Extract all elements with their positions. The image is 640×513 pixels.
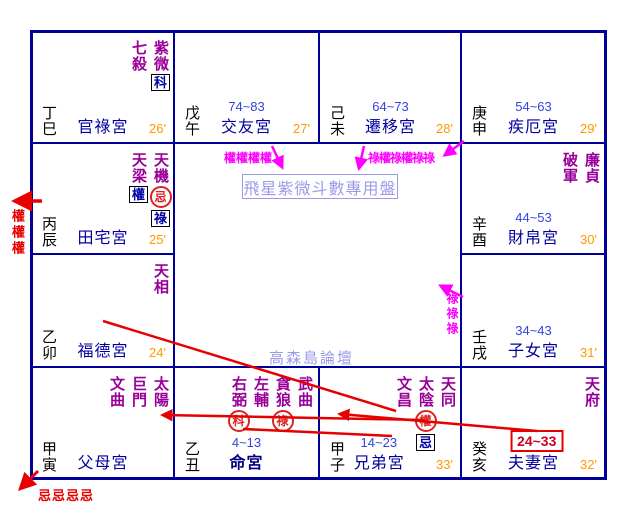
minute-mark: 30' xyxy=(580,232,597,247)
grid-line-v1 xyxy=(173,33,175,477)
star-pojun: 破軍 xyxy=(560,152,579,184)
grid-line-v3 xyxy=(460,33,462,477)
minute-mark: 29' xyxy=(580,121,597,136)
palace-name: 遷移宮 xyxy=(365,113,416,137)
grid-line-h2-right xyxy=(460,253,607,255)
palace-cell-fude: 天相 乙卯 福德宮 24' xyxy=(33,256,173,366)
star-column: 左輔 xyxy=(251,376,270,432)
branch-label: 壬戌 xyxy=(470,329,487,361)
star-group: 天相 xyxy=(151,263,170,295)
palace-name: 疾厄宮 xyxy=(508,113,559,137)
branch-label: 癸亥 xyxy=(470,441,487,473)
star-group: 廉貞 破軍 xyxy=(560,152,601,184)
palace-cell-ming: 武曲 貪狼 祿 左輔 右弼 科 乙丑 4~13 命宮 xyxy=(176,369,317,478)
palace-cell-zinv: 壬戌 34~43 子女宮 31' xyxy=(463,256,604,366)
marker-circle-ji: 忌 xyxy=(150,186,172,208)
star-group: 太陽 巨門 文曲 xyxy=(107,376,170,408)
star-column: 紫微 科 xyxy=(151,40,170,91)
star-ziwei: 紫微 xyxy=(151,40,170,72)
branch-label: 乙卯 xyxy=(40,329,57,361)
star-wuqu: 武曲 xyxy=(295,376,314,408)
palace-cell-jiaoyou: 戊午 74~83 交友宮 27' xyxy=(176,33,317,142)
palace-name: 夫妻宮 xyxy=(508,449,559,473)
star-column: 貪狼 祿 xyxy=(273,376,292,432)
star-wenqu: 文曲 xyxy=(107,376,126,408)
palace-cell-caibo: 廉貞 破軍 辛酉 44~53 財帛宮 30' xyxy=(463,145,604,253)
marker-circle-lu: 祿 xyxy=(272,410,294,432)
star-wenchang: 文昌 xyxy=(394,376,413,408)
age-range: 34~43 xyxy=(515,323,552,338)
palace-cell-tianzhai: 天機 忌 祿 天梁 權 丙辰 田宅宮 25' xyxy=(33,145,173,253)
star-tiantong: 天同 xyxy=(438,376,457,408)
age-range: 54~63 xyxy=(515,99,552,114)
minute-mark: 26' xyxy=(149,121,166,136)
label-quan-left: 權權權 xyxy=(11,209,24,257)
star-group: 天機 忌 祿 天梁 權 xyxy=(129,152,170,227)
star-jumen: 巨門 xyxy=(129,376,148,408)
watermark-text: 高森島論壇 xyxy=(269,347,354,368)
star-zuofu: 左輔 xyxy=(251,376,270,408)
palace-cell-fumu: 太陽 巨門 文曲 甲寅 父母宮 xyxy=(33,369,173,478)
star-column: 天同 xyxy=(438,376,457,451)
marker-circle-quan: 權 xyxy=(415,410,437,432)
star-column: 廉貞 xyxy=(582,152,601,184)
branch-label: 甲寅 xyxy=(40,441,57,473)
chart-title: 飛星紫微斗數專用盤 xyxy=(243,175,396,199)
star-group: 天府 xyxy=(582,376,601,408)
chart-title-box: 飛星紫微斗數專用盤 xyxy=(242,174,398,199)
star-column: 七殺 xyxy=(129,40,148,91)
palace-name: 官祿宮 xyxy=(77,113,128,137)
palace-name: 兄弟宮 xyxy=(354,449,405,473)
marker-box-ke: 科 xyxy=(151,74,170,91)
palace-cell-guanlu: 紫微 科 七殺 丁巳 官祿宮 26' xyxy=(33,33,173,142)
palace-cell-jie: 庚申 54~63 疾厄宮 29' xyxy=(463,33,604,142)
star-column: 太陽 xyxy=(151,376,170,408)
palace-name: 交友宮 xyxy=(221,113,272,137)
star-group: 天同 太陰 權 忌 文昌 xyxy=(394,376,457,451)
star-tianliang: 天梁 xyxy=(129,152,148,184)
grid-line-h2-left xyxy=(33,253,173,255)
age-range: 14~23 xyxy=(361,435,398,450)
minute-mark: 24' xyxy=(149,345,166,360)
star-tianxiang: 天相 xyxy=(151,263,170,295)
age-range: 74~83 xyxy=(228,99,265,114)
branch-label: 辛酉 xyxy=(470,216,487,248)
star-column: 天機 忌 祿 xyxy=(151,152,170,227)
star-column: 巨門 xyxy=(129,376,148,408)
star-lianzhen: 廉貞 xyxy=(582,152,601,184)
star-column: 武曲 xyxy=(295,376,314,432)
star-tanlang: 貪狼 xyxy=(273,376,292,408)
label-ji-bottom: 忌忌忌忌 xyxy=(38,485,94,504)
star-tianfu: 天府 xyxy=(582,376,601,408)
marker-box-ji: 忌 xyxy=(416,434,435,451)
palace-name: 福德宮 xyxy=(77,337,128,361)
palace-name: 父母宮 xyxy=(77,449,128,473)
star-column: 天相 xyxy=(151,263,170,295)
marker-circle-ke: 科 xyxy=(228,410,250,432)
palace-cell-fuqi: 天府 癸亥 24~33 夫妻宮 32' xyxy=(463,369,604,478)
star-column: 太陰 權 忌 xyxy=(416,376,435,451)
star-column: 右弼 科 xyxy=(229,376,248,432)
grid-line-h1 xyxy=(33,142,607,144)
marker-box-lu: 祿 xyxy=(151,210,170,227)
star-group: 武曲 貪狼 祿 左輔 右弼 科 xyxy=(229,376,314,432)
ziwei-chart: 飛星紫微斗數專用盤 高森島論壇 紫微 科 七殺 丁巳 官祿宮 26' 戊午 74… xyxy=(0,0,640,513)
star-column: 天梁 權 xyxy=(129,152,148,227)
palace-name-ming: 命宮 xyxy=(229,449,263,473)
star-youbi: 右弼 xyxy=(229,376,248,408)
star-column: 天府 xyxy=(582,376,601,408)
label-lu-quan-top: 祿權祿權祿祿 xyxy=(368,149,434,166)
branch-label: 戊午 xyxy=(183,105,200,137)
age-range: 44~53 xyxy=(515,210,552,225)
star-taiyin: 太陰 xyxy=(416,376,435,408)
age-range: 64~73 xyxy=(372,99,409,114)
branch-label: 己未 xyxy=(328,105,345,137)
branch-label: 庚申 xyxy=(470,105,487,137)
marker-box-quan: 權 xyxy=(129,186,148,203)
star-tianji: 天機 xyxy=(151,152,170,184)
branch-label: 甲子 xyxy=(328,441,345,473)
branch-label: 乙丑 xyxy=(183,441,200,473)
age-range: 4~13 xyxy=(232,435,261,450)
minute-mark: 33' xyxy=(436,457,453,472)
grid-line-v2-top xyxy=(318,33,320,142)
grid-line-v2-bottom xyxy=(318,368,320,477)
minute-mark: 32' xyxy=(580,457,597,472)
star-taiyang: 太陽 xyxy=(151,376,170,408)
branch-label: 丙辰 xyxy=(40,216,57,248)
star-column: 破軍 xyxy=(560,152,579,184)
minute-mark: 28' xyxy=(436,121,453,136)
palace-cell-xiongdi: 天同 太陰 權 忌 文昌 甲子 14~23 兄弟宮 33' xyxy=(321,369,460,478)
minute-mark: 27' xyxy=(293,121,310,136)
palace-name: 田宅宮 xyxy=(77,224,128,248)
branch-label: 丁巳 xyxy=(40,105,57,137)
label-lu-right: 祿祿祿 xyxy=(446,292,458,337)
star-group: 紫微 科 七殺 xyxy=(129,40,170,91)
minute-mark: 31' xyxy=(580,345,597,360)
star-column: 文曲 xyxy=(107,376,126,408)
label-quan-top: 權權權權 xyxy=(224,149,272,166)
palace-name: 財帛宮 xyxy=(508,224,559,248)
star-qisha: 七殺 xyxy=(129,40,148,72)
minute-mark: 25' xyxy=(149,232,166,247)
palace-cell-qianyi: 己未 64~73 遷移宮 28' xyxy=(321,33,460,142)
palace-name: 子女宮 xyxy=(508,337,559,361)
